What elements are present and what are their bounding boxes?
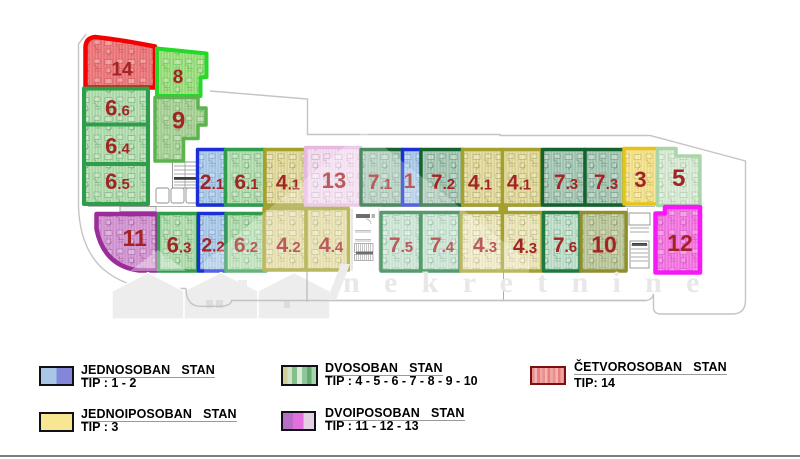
svg-text:3: 3: [634, 167, 646, 192]
svg-text:8: 8: [173, 67, 184, 88]
svg-text:12: 12: [667, 230, 693, 256]
svg-text:10: 10: [591, 232, 617, 258]
svg-text:nekretnine: nekretnine: [343, 266, 724, 299]
svg-text:14: 14: [111, 60, 133, 81]
svg-text:11: 11: [123, 225, 148, 251]
svg-text:5: 5: [672, 165, 685, 192]
svg-text:9: 9: [172, 108, 185, 135]
